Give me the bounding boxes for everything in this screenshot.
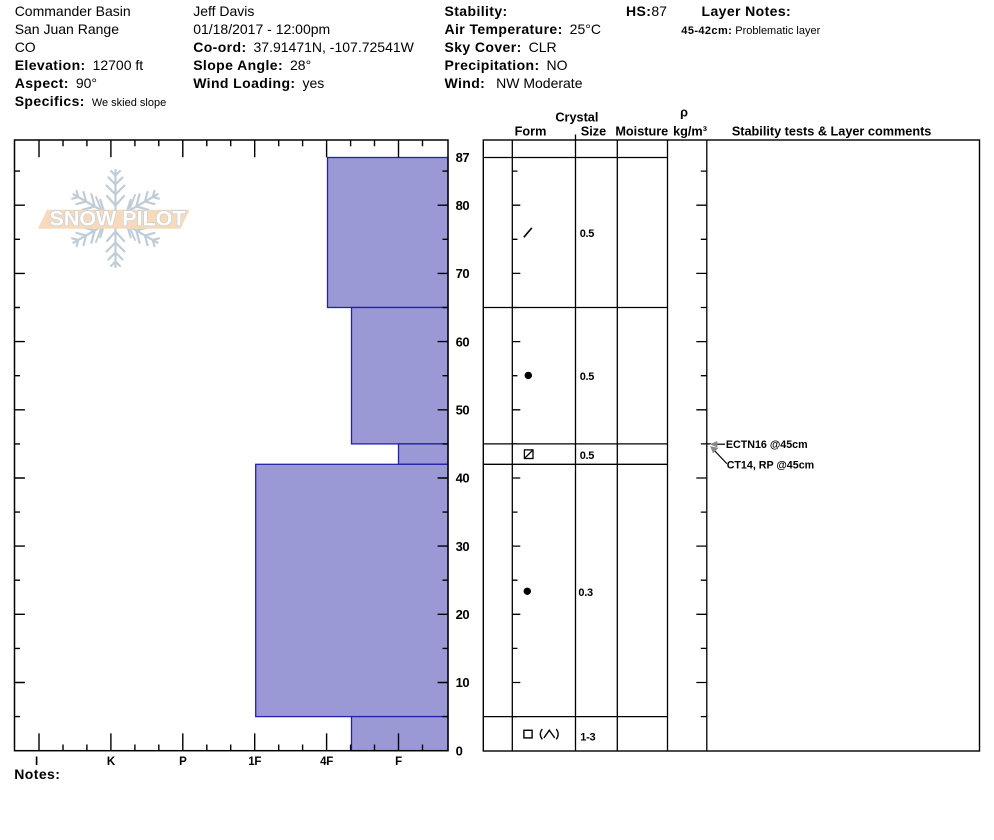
svg-text:87: 87: [456, 150, 470, 165]
svg-text:Crystal: Crystal: [555, 110, 598, 124]
svg-text:Moisture: Moisture: [615, 125, 668, 139]
svg-text:50: 50: [456, 403, 470, 418]
svg-text:ρ: ρ: [680, 106, 688, 120]
svg-text:Form: Form: [515, 125, 547, 139]
svg-text:I: I: [35, 756, 38, 768]
svg-text:4F: 4F: [320, 756, 333, 768]
svg-text:1F: 1F: [248, 756, 261, 768]
svg-text:0.5: 0.5: [580, 450, 595, 462]
svg-text:K: K: [107, 756, 116, 768]
svg-text:kg/m³: kg/m³: [673, 125, 707, 139]
svg-text:70: 70: [456, 266, 470, 281]
svg-text:0: 0: [456, 743, 463, 758]
svg-text:ECTN16 @45cm: ECTN16 @45cm: [726, 439, 808, 451]
svg-text:0.3: 0.3: [578, 587, 593, 599]
svg-text:30: 30: [456, 539, 470, 554]
svg-text:SNOW PILOT: SNOW PILOT: [50, 207, 186, 230]
svg-text:1-3: 1-3: [580, 731, 595, 743]
svg-text:0.5: 0.5: [580, 371, 595, 383]
svg-text:Stability tests & Layer commen: Stability tests & Layer comments: [732, 125, 932, 139]
svg-text:CT14, RP @45cm: CT14, RP @45cm: [727, 460, 814, 472]
svg-text:80: 80: [456, 198, 470, 213]
svg-text:60: 60: [456, 334, 470, 349]
svg-text:P: P: [179, 756, 187, 768]
svg-text:10: 10: [456, 675, 470, 690]
svg-text:F: F: [395, 756, 402, 768]
svg-text:40: 40: [456, 471, 470, 486]
svg-text:0.5: 0.5: [580, 228, 595, 240]
svg-text:Size: Size: [581, 125, 606, 139]
svg-text:20: 20: [456, 607, 470, 622]
